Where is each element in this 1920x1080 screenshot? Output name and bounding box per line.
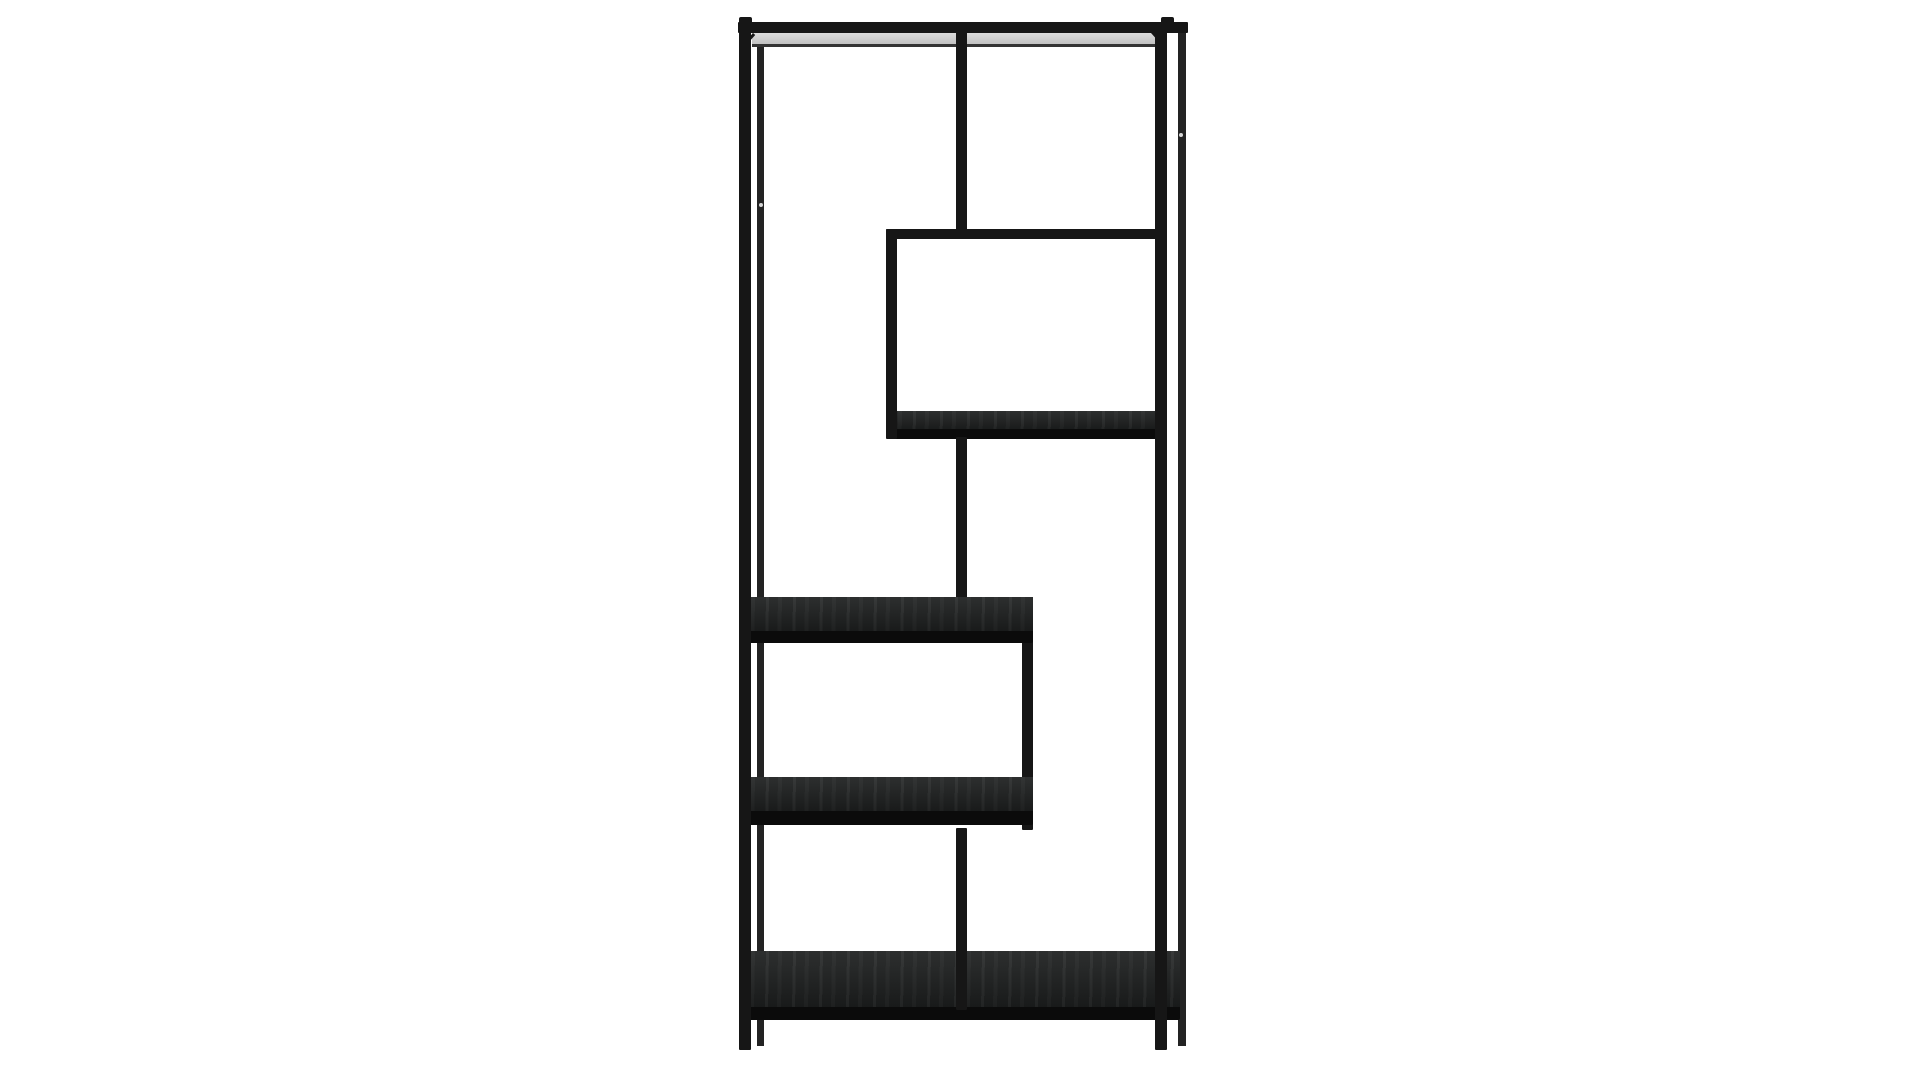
lower-shelf-top bbox=[739, 777, 1033, 813]
upper-box-shelf-top bbox=[886, 411, 1167, 431]
left-front-post bbox=[739, 22, 751, 1050]
screw-hole-left bbox=[759, 203, 763, 207]
top-shelf-seam bbox=[752, 44, 1155, 47]
center-divider-middle bbox=[956, 437, 967, 600]
upper-box-left-edge bbox=[886, 229, 897, 439]
middle-shelf-top bbox=[739, 597, 1033, 633]
center-divider-top bbox=[956, 28, 967, 231]
left-back-leg bbox=[757, 30, 764, 1046]
center-divider-bottom bbox=[956, 828, 967, 1010]
right-front-post bbox=[1155, 22, 1167, 1050]
right-back-leg bbox=[1178, 30, 1186, 1046]
upper-box-shelf-lip bbox=[886, 429, 1167, 439]
product-photo-bookshelf bbox=[0, 0, 1920, 1080]
lower-shelf-lip bbox=[739, 811, 1033, 825]
middle-shelf-lip bbox=[739, 631, 1033, 643]
screw-hole-right bbox=[1179, 133, 1183, 137]
upper-box-top-rail bbox=[886, 229, 1167, 239]
